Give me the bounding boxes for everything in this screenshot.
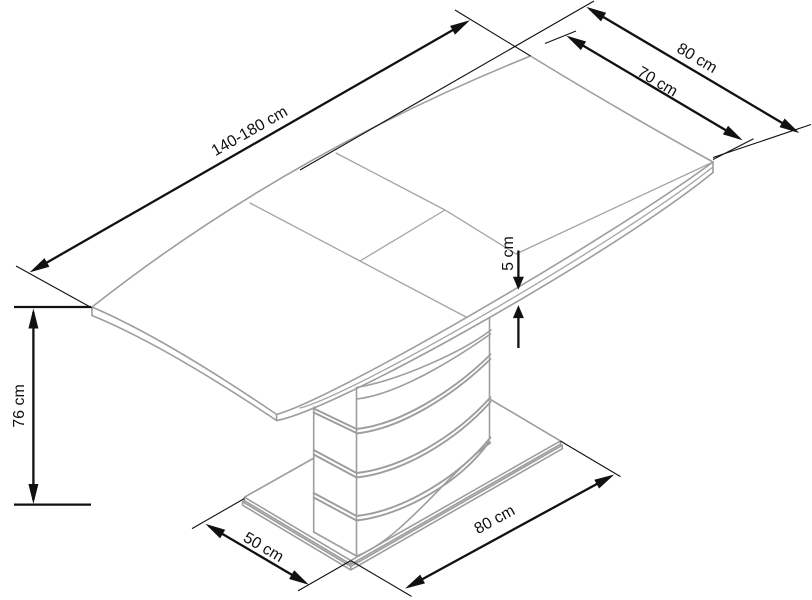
svg-text:140-180 cm: 140-180 cm [209,103,291,160]
svg-text:76 cm: 76 cm [11,384,28,428]
svg-text:80 cm: 80 cm [472,502,518,538]
svg-text:5 cm: 5 cm [500,236,517,271]
svg-text:50 cm: 50 cm [240,529,286,566]
svg-text:70 cm: 70 cm [634,64,680,101]
